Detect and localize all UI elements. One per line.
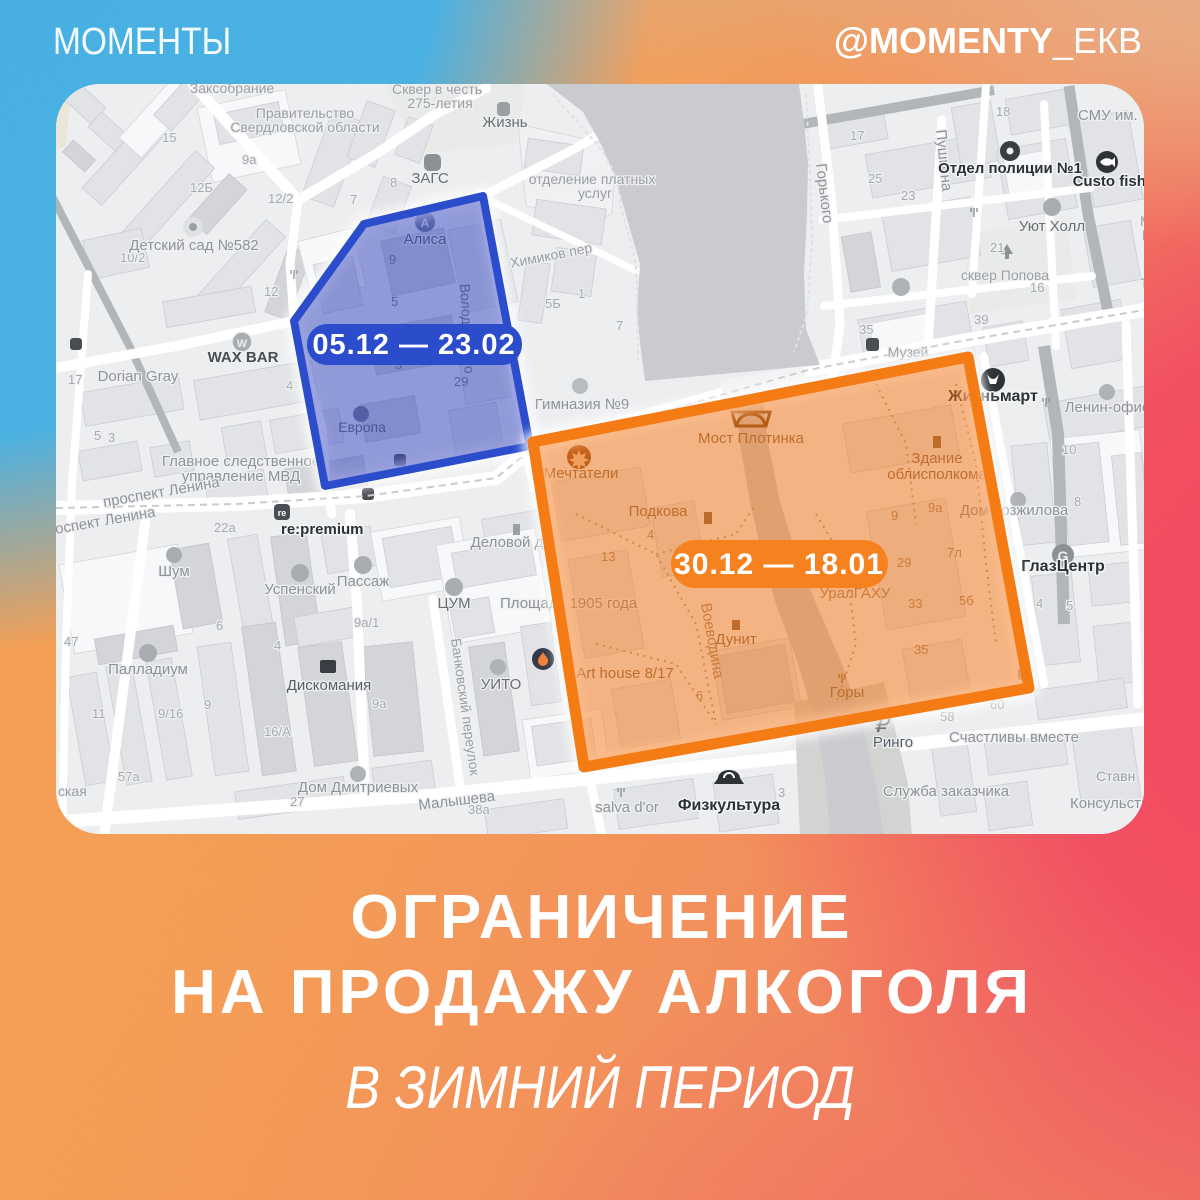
svg-text:5: 5 xyxy=(1066,598,1073,613)
svg-text:27: 27 xyxy=(290,794,304,809)
svg-text:ЗАГС: ЗАГС xyxy=(411,170,449,187)
svg-text:СМУ им. Ч: СМУ им. Ч xyxy=(1078,107,1144,124)
svg-text:05.12 — 23.02: 05.12 — 23.02 xyxy=(312,329,515,361)
svg-text:10: 10 xyxy=(1062,442,1076,457)
svg-text:9а/1: 9а/1 xyxy=(354,615,379,630)
svg-text:УИТО: УИТО xyxy=(481,676,521,693)
svg-text:re:premium: re:premium xyxy=(281,521,364,538)
svg-text:Палладиум: Палладиум xyxy=(108,661,188,678)
svg-text:Служба заказчика: Служба заказчика xyxy=(883,783,1010,800)
svg-text:Пассаж: Пассаж xyxy=(337,573,390,590)
svg-text:salva d'or: salva d'or xyxy=(595,799,659,816)
svg-text:Отдел полиции №1: Отдел полиции №1 xyxy=(938,160,1082,177)
svg-text:35: 35 xyxy=(859,322,873,337)
svg-text:Детский сад №582: Детский сад №582 xyxy=(129,237,259,254)
svg-text:Жизнь: Жизнь xyxy=(482,114,527,131)
svg-text:re: re xyxy=(278,508,287,518)
svg-text:ЦУМ: ЦУМ xyxy=(437,595,470,612)
svg-text:1: 1 xyxy=(578,286,585,301)
svg-text:Custo fish bar: Custo fish bar xyxy=(1073,173,1144,190)
svg-text:4: 4 xyxy=(286,378,293,393)
svg-text:39: 39 xyxy=(974,312,988,327)
svg-text:Ринго: Ринго xyxy=(873,734,913,751)
svg-text:21: 21 xyxy=(990,240,1004,255)
svg-text:Дом Дмитриевых: Дом Дмитриевых xyxy=(298,779,419,796)
svg-text:6: 6 xyxy=(216,618,223,633)
svg-text:WAX BAR: WAX BAR xyxy=(208,349,279,366)
svg-text:Dorian Gray: Dorian Gray xyxy=(98,368,179,385)
svg-text:Деловой д: Деловой д xyxy=(471,534,544,551)
svg-text:12: 12 xyxy=(264,284,278,299)
svg-text:Театр муз: Театр муз xyxy=(1140,275,1144,291)
svg-text:23: 23 xyxy=(901,188,915,203)
svg-text:38а: 38а xyxy=(468,802,490,817)
svg-text:Свердловской области: Свердловской области xyxy=(230,119,379,135)
svg-text:7: 7 xyxy=(616,318,623,333)
svg-text:15: 15 xyxy=(162,130,176,145)
svg-text:57а: 57а xyxy=(118,769,140,784)
svg-text:8: 8 xyxy=(390,175,397,190)
svg-text:16/А: 16/А xyxy=(264,724,291,739)
svg-text:Дискомания: Дискомания xyxy=(287,677,372,694)
svg-text:3: 3 xyxy=(108,430,115,445)
svg-text:9: 9 xyxy=(204,697,211,712)
svg-text:9а: 9а xyxy=(242,152,257,167)
svg-text:Счастливы вместе: Счастливы вместе xyxy=(949,729,1079,746)
svg-text:17: 17 xyxy=(850,128,864,143)
svg-text:Шум: Шум xyxy=(158,563,189,580)
svg-text:18: 18 xyxy=(996,104,1010,119)
svg-text:5Б: 5Б xyxy=(545,296,561,311)
svg-text:Консульство Кипр: Консульство Кипр xyxy=(1070,795,1144,812)
svg-text:16: 16 xyxy=(1030,280,1044,295)
svg-text:12/2: 12/2 xyxy=(268,191,293,206)
svg-text:7: 7 xyxy=(350,192,357,207)
svg-text:3: 3 xyxy=(778,785,785,800)
svg-text:4: 4 xyxy=(1036,596,1043,611)
svg-text:4: 4 xyxy=(274,638,281,653)
svg-text:ГлазЦентр: ГлазЦентр xyxy=(1021,558,1105,575)
svg-text:5: 5 xyxy=(94,428,101,443)
svg-text:Заксобрание: Заксобрание xyxy=(190,84,275,96)
svg-text:Физкультура: Физкультура xyxy=(678,797,780,814)
svg-text:12Б: 12Б xyxy=(190,180,213,195)
svg-text:47: 47 xyxy=(64,634,78,649)
svg-text:25: 25 xyxy=(868,171,882,186)
svg-text:9/16: 9/16 xyxy=(158,706,183,721)
svg-text:Уют Холл: Уют Холл xyxy=(1019,218,1085,235)
svg-text:9а: 9а xyxy=(372,696,387,711)
svg-text:275-летия: 275-летия xyxy=(407,95,472,111)
svg-text:Екатеринб: Екатеринб xyxy=(1142,227,1144,243)
svg-text:11: 11 xyxy=(92,706,106,721)
svg-text:ская: ская xyxy=(58,783,87,799)
svg-text:17: 17 xyxy=(68,372,82,387)
svg-text:Успенский: Успенский xyxy=(264,581,336,598)
svg-text:8: 8 xyxy=(1074,494,1081,509)
svg-text:услуг: услуг xyxy=(578,185,612,201)
svg-text:Ставн: Ставн xyxy=(1096,768,1135,784)
svg-text:30.12 — 18.01: 30.12 — 18.01 xyxy=(674,548,884,581)
svg-text:Гимназия №9: Гимназия №9 xyxy=(535,396,629,413)
svg-text:22а: 22а xyxy=(214,520,236,535)
svg-text:Ленин-офис: Ленин-офис xyxy=(1065,399,1144,416)
